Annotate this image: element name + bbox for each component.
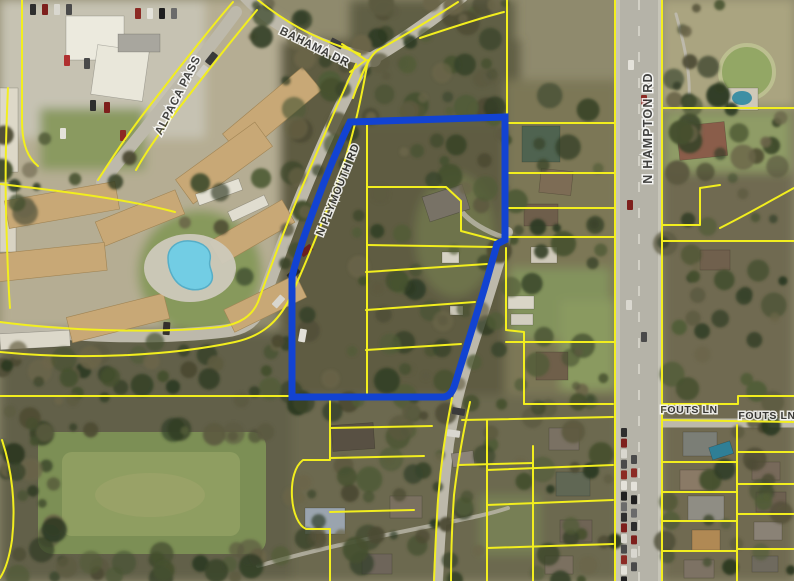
swimming-pool bbox=[144, 234, 236, 302]
aerial-imagery: BAHAMA DR ALPACA PASS N PLYMOUTH RD N HA… bbox=[0, 0, 794, 581]
street-label-fouts-ln-east: FOUTS LN bbox=[738, 410, 794, 422]
street-label-n-hampton-rd: N HAMPTON RD bbox=[641, 72, 655, 183]
aerial-map-viewport[interactable]: BAHAMA DR ALPACA PASS N PLYMOUTH RD N HA… bbox=[0, 0, 794, 581]
park-field bbox=[38, 432, 266, 554]
street-label-fouts-ln-west: FOUTS LN bbox=[660, 404, 717, 416]
